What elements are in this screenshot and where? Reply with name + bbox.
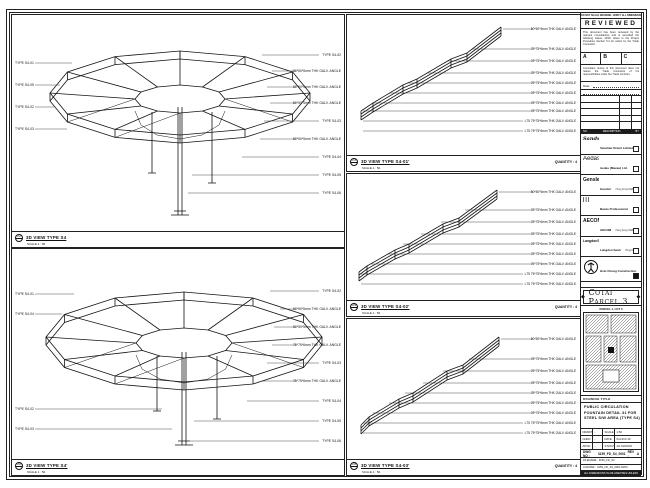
callout-label: TYPE S4-01 xyxy=(15,61,34,65)
callout-label: 75*75*6mm THK GALV. ANGLE xyxy=(531,91,576,95)
company-row-gensler: Gensler Gensler Hong Kong SAR xyxy=(581,175,641,196)
callout-label: 50*50*5mm THK GALV. ANGLE xyxy=(293,325,342,329)
drawing-sheet: TYPE S4-02 50*50*5mm THK GALV. ANGLE 50*… xyxy=(0,0,650,488)
callout-label: TYPE S4-03 xyxy=(322,361,341,365)
callout-label: TYPE S4-02 xyxy=(15,105,34,109)
callout-label: 75*75*6mm THK GALV. ANGLE xyxy=(293,379,342,383)
callout-label: TYPE S4-06 xyxy=(322,191,341,195)
leader-lines xyxy=(361,192,533,284)
detail-bubble: 23 xyxy=(350,158,358,166)
callout-label: 75*75*6mm THK GALV. ANGLE xyxy=(531,262,576,266)
aecom-logo: AECOM xyxy=(583,218,599,224)
callout-label: TYPE S4-03 xyxy=(15,127,34,131)
project-banner: ◆ Cotai Parcel 3 ◆ xyxy=(581,288,641,306)
callout-label: L75 75*75*6mm THK GALV. ANGLE xyxy=(525,129,576,133)
isometric-structure-drawing-s4: TYPE S4-02 50*50*5mm THK GALV. ANGLE 50*… xyxy=(12,15,342,229)
view-title: 3D VIEW TYPE S4-03' xyxy=(361,463,410,468)
dwg-no-row: DWG NO : 3159_FD_S4_0001 REV : A xyxy=(581,450,641,458)
callout-label: 50*50*5mm THK GALV. ANGLE xyxy=(531,190,576,194)
view-scale: SCALE 1 : 50 xyxy=(27,470,341,475)
callout-label: TYPE S4-02 xyxy=(15,407,34,411)
view-panel-s4: TYPE S4-02 50*50*5mm THK GALV. ANGLE 50*… xyxy=(11,14,345,248)
stamp-option-b[interactable]: B xyxy=(601,53,621,64)
view-scale: SCALE 1 : 50 xyxy=(362,166,577,171)
isometric-structure-drawing-s4-prime: TYPE S4-02 50*50*5mm THK GALV. ANGLE 50*… xyxy=(12,249,342,457)
hsin-chong-logo xyxy=(583,259,599,275)
stamp-paragraph-1: This document has been reviewed by the r… xyxy=(581,29,641,53)
titleblock-fields: DRAWN - SCALE 1:50 CHKD - DATE 04-NOV-10… xyxy=(581,429,641,450)
callout-label: 75*75*6mm THK GALV. ANGLE xyxy=(531,101,576,105)
view-title-strip: 25 3D VIEW TYPE S4-03' QUANTITY : 4 SCAL… xyxy=(347,459,580,475)
callout-label: TYPE S4-04 xyxy=(322,399,341,403)
callout-label: 75*75*6mm THK GALV. ANGLE xyxy=(531,220,576,224)
title-block-column: DO NOT SCALE DRAWING. VERIFY ALL DIMENSI… xyxy=(580,12,642,475)
callout-label: TYPE S4-02 xyxy=(322,53,341,57)
filename-row: FILENAME : 3159_FD_S4 xyxy=(581,458,641,465)
callout-label: 75*75*6mm THK GALV. ANGLE xyxy=(531,357,576,361)
langdon-seah-logo: LangdonSeah xyxy=(583,238,599,244)
company-row-aecom: AECOM AECOM Hong Kong SAR xyxy=(581,216,641,237)
field-value-chkd: - xyxy=(593,436,603,443)
callout-label: 75*75*6mm THK GALV. ANGLE xyxy=(531,411,576,415)
filename-label: FILENAME : xyxy=(583,459,598,462)
company-row-venetian: Sands Venetian Orient Limited Estrada da… xyxy=(581,134,641,155)
reviewed-stamp-header: REVIEWED xyxy=(581,19,641,29)
detail-panel-s4-01: 50*50*5mm THK GALV. ANGLE 75*75*6mm THK … xyxy=(346,14,581,172)
company-name: Gensler xyxy=(600,187,611,191)
callout-label: 75*75*6mm THK GALV. ANGLE xyxy=(531,242,576,246)
view-panel-s4-prime: TYPE S4-02 50*50*5mm THK GALV. ANGLE 50*… xyxy=(11,248,345,476)
view-scale: SCALE 1 : 50 xyxy=(362,311,577,316)
view-scale: SCALE 1 : 50 xyxy=(362,470,577,475)
callout-label: TYPE S4-01 xyxy=(15,292,34,296)
view-quantity: QUANTITY : 4 xyxy=(555,464,577,468)
rev-label: REV : xyxy=(628,450,635,458)
revision-row xyxy=(581,122,641,129)
callout-label: L75 75*75*6mm THK GALV. ANGLE xyxy=(525,119,576,123)
view-title-strip: 23 3D VIEW TYPE S4-01' QUANTITY : 4 SCAL… xyxy=(347,155,580,171)
company-name: Langdon Seah xyxy=(600,248,621,252)
banner-ornament-right-icon: ◆ xyxy=(637,294,641,300)
view-title: 3D VIEW TYPE S4-02' xyxy=(361,304,410,309)
callout-label: 50*50*5mm THK GALV. ANGLE xyxy=(531,27,576,31)
field-label-date: DATE xyxy=(603,436,615,443)
revision-row xyxy=(581,116,641,123)
callout-label: 50*50*5mm THK GALV. ANGLE xyxy=(293,137,342,141)
detail-panel-s4-03: 50*50*5mm THK GALV. ANGLE 75*75*6mm THK … xyxy=(346,318,581,476)
approval-checkbox[interactable] xyxy=(633,187,639,193)
callout-label: 75*75*6mm THK GALV. ANGLE xyxy=(531,208,576,212)
approval-checkbox[interactable] xyxy=(633,146,639,152)
view-title: 3D VIEW TYPE S4 xyxy=(26,235,66,240)
revision-col-divider xyxy=(619,96,620,129)
callout-label: 50*50*5mm THK GALV. ANGLE xyxy=(293,85,342,89)
dwg-no-value: 3159_FD_S4_0001 xyxy=(598,452,626,456)
revision-row xyxy=(581,103,641,110)
callout-label: 50*50*5mm THK GALV. ANGLE xyxy=(531,337,576,341)
view-title: 3D VIEW TYPE S4' xyxy=(26,463,68,468)
field-value-apvd: - xyxy=(593,443,603,450)
field-value-scale: 1:50 xyxy=(615,429,641,436)
callout-label: TYPE S4-06 xyxy=(322,439,341,443)
contractor-row: Hsin Chong Construction (Macau) Co. Ltd.… xyxy=(581,257,641,282)
callout-label: 75*75*6mm THK GALV. ANGLE xyxy=(531,369,576,373)
drawing-title-lines: PUBLIC CIRCULATION FOUNTAIN DETAIL 31 FO… xyxy=(581,403,641,429)
callout-label: TYPE S4-05 xyxy=(322,419,341,423)
view-title: 3D VIEW TYPE S4-01' xyxy=(361,159,410,164)
stamp-option-c[interactable]: C xyxy=(622,53,641,64)
field-value-date: 04-NOV-10 xyxy=(615,436,641,443)
company-name: Bacas Professional Services Ltd. xyxy=(600,207,628,216)
view-scale: SCALE 1 : 50 xyxy=(27,242,341,247)
field-value-status: AS SHOWN xyxy=(615,443,641,450)
revision-header-by: BY xyxy=(636,129,639,133)
callout-label: 75*75*6mm THK GALV. ANGLE xyxy=(293,343,342,347)
stamp-status-options: A B C xyxy=(581,53,641,65)
view-quantity: QUANTITY : 4 xyxy=(555,160,577,164)
view-title-strip: 26 3D VIEW TYPE S4' SCALE 1 : 50 xyxy=(12,459,344,475)
field-value-drawn: - xyxy=(593,429,603,436)
view-quantity: QUANTITY : 4 xyxy=(555,305,577,309)
gensler-logo: Gensler xyxy=(583,177,599,183)
revision-row xyxy=(581,96,641,103)
callout-label: TYPE S4-04 xyxy=(322,155,341,159)
callout-label: 75*75*6mm THK GALV. ANGLE xyxy=(531,47,576,51)
callout-label: L75 75*75*6mm THK GALV. ANGLE xyxy=(525,431,576,435)
blank-fill-line xyxy=(583,90,639,95)
view-title-strip: 22 3D VIEW TYPE S4 SCALE 1 : 50 xyxy=(12,231,344,247)
callout-label: 75*75*6mm THK GALV. ANGLE xyxy=(531,401,576,405)
banner-ornament-left-icon: ◆ xyxy=(581,294,585,300)
rev-value: A xyxy=(637,452,639,456)
approval-checkbox[interactable] xyxy=(633,166,639,172)
revision-col-divider xyxy=(631,96,632,129)
callout-label: TYPE S4-04 xyxy=(15,312,34,316)
company-address: Hong Kong SAR xyxy=(616,229,634,232)
contractor-marker xyxy=(633,273,639,279)
detail-bubble: 22 xyxy=(15,234,23,242)
callout-label: 75*75*6mm THK GALV. ANGLE xyxy=(531,81,576,85)
company-row-bacas: ||| Bacas Professional Services Ltd. Mac… xyxy=(581,196,641,217)
callout-label: L75 75*75*6mm THK GALV. ANGLE xyxy=(525,272,576,276)
callout-label: 75*75*6mm THK GALV. ANGLE xyxy=(531,232,576,236)
project-banner-text: Cotai Parcel 3 xyxy=(588,288,633,306)
stamp-option-a[interactable]: A xyxy=(581,53,601,64)
leader-lines xyxy=(35,55,319,193)
callout-label: 75*75*6mm THK GALV. ANGLE xyxy=(531,381,576,385)
contractor-name: Hsin Chong Construction (Macau) Co. Ltd. xyxy=(600,269,636,283)
beam-detail-drawing-s4-02: 50*50*5mm THK GALV. ANGLE 75*75*6mm THK … xyxy=(347,174,578,298)
callout-label: 50*50*5mm THK GALV. ANGLE xyxy=(293,307,342,311)
field-label-drawn: DRAWN xyxy=(581,429,593,436)
company-name: Aedas (Macau) Ltd. xyxy=(600,166,628,170)
callout-label: TYPE S4-03 xyxy=(322,119,341,123)
company-name: Venetian Orient Limited xyxy=(600,146,634,150)
dwg-no-label: DWG NO : xyxy=(583,450,596,458)
stamp-date-label: Date : xyxy=(583,84,591,88)
leader-lines xyxy=(363,29,533,131)
stamp-paragraph-2: Consultant review of this document does … xyxy=(581,65,641,82)
callout-label: 75*75*6mm THK GALV. ANGLE xyxy=(531,109,576,113)
callout-label: TYPE S4-05 xyxy=(15,83,34,87)
drawing-title-header: DRAWING TITLE xyxy=(581,396,641,403)
callout-label: 75*75*6mm THK GALV. ANGLE xyxy=(531,391,576,395)
filename-value: 3159_FD_S4 xyxy=(599,459,615,462)
drawing-title-line-3: STEEL S/W AREA (TYPE S4) xyxy=(581,416,641,422)
date-fill-line xyxy=(593,83,639,88)
callout-label: TYPE S4-05 xyxy=(322,173,341,177)
key-plan-map xyxy=(583,312,639,392)
callout-label: 75*75*6mm THK GALV. ANGLE xyxy=(531,71,576,75)
callout-label: L75 75*75*6mm THK GALV. ANGLE xyxy=(525,421,576,425)
company-row-langdon-seah: LangdonSeah Langdon Seah Hong Kong SAR xyxy=(581,237,641,258)
key-plan-section: PARCEL 1, LOT 3 xyxy=(581,306,641,396)
field-label-chkd: CHKD xyxy=(581,436,593,443)
callout-label: 50*50*5mm THK GALV. ANGLE xyxy=(293,69,342,73)
approval-checkbox[interactable] xyxy=(633,248,639,254)
field-label-status: STATUS xyxy=(603,443,615,450)
field-label-apvd: APVD xyxy=(581,443,593,450)
callout-label: 50*50*5mm THK GALV. ANGLE xyxy=(293,101,342,105)
callout-label: 75*75*6mm THK GALV. ANGLE xyxy=(531,252,576,256)
beam-detail-drawing-s4-03: 50*50*5mm THK GALV. ANGLE 75*75*6mm THK … xyxy=(347,319,578,457)
venetian-logo: Sands xyxy=(583,136,599,142)
company-row-aedas: Aedas Aedas (Macau) Ltd. Avenida da Prai… xyxy=(581,155,641,176)
revision-row xyxy=(581,109,641,116)
revision-table xyxy=(581,96,641,129)
revision-header-description: DESCRIPTION xyxy=(603,129,621,133)
company-name: AECOM xyxy=(600,228,611,232)
stamp-date-row: Date : xyxy=(581,82,641,90)
callout-label: TYPE S4-02 xyxy=(322,289,341,293)
company-address: Hong Kong SAR xyxy=(616,188,634,191)
detail-panel-s4-02: 50*50*5mm THK GALV. ANGLE 75*75*6mm THK … xyxy=(346,173,581,317)
bottom-note-bar: ALL DIMENSIONS IN MILLIMETRES UNLESS OTH… xyxy=(581,471,641,476)
bacas-logo: ||| xyxy=(583,197,599,203)
detail-bubble: 24 xyxy=(350,303,358,311)
approval-checkbox[interactable] xyxy=(633,207,639,213)
revision-header-no: NO. xyxy=(583,129,588,133)
approval-checkbox[interactable] xyxy=(633,228,639,234)
aedas-logo: Aedas xyxy=(583,156,599,162)
field-label-scale: SCALE xyxy=(603,429,615,436)
leader-lines xyxy=(363,339,533,433)
view-title-strip: 24 3D VIEW TYPE S4-02' QUANTITY : 4 SCAL… xyxy=(347,300,580,316)
beam-detail-drawing-s4-01: 50*50*5mm THK GALV. ANGLE 75*75*6mm THK … xyxy=(347,15,578,153)
detail-bubble: 25 xyxy=(350,462,358,470)
callout-label: TYPE S4-03 xyxy=(15,427,34,431)
detail-bubble: 26 xyxy=(15,462,23,470)
callout-label: 75*75*6mm THK GALV. ANGLE xyxy=(531,59,576,63)
callout-label: L75 75*75*6mm THK GALV. ANGLE xyxy=(525,282,576,286)
